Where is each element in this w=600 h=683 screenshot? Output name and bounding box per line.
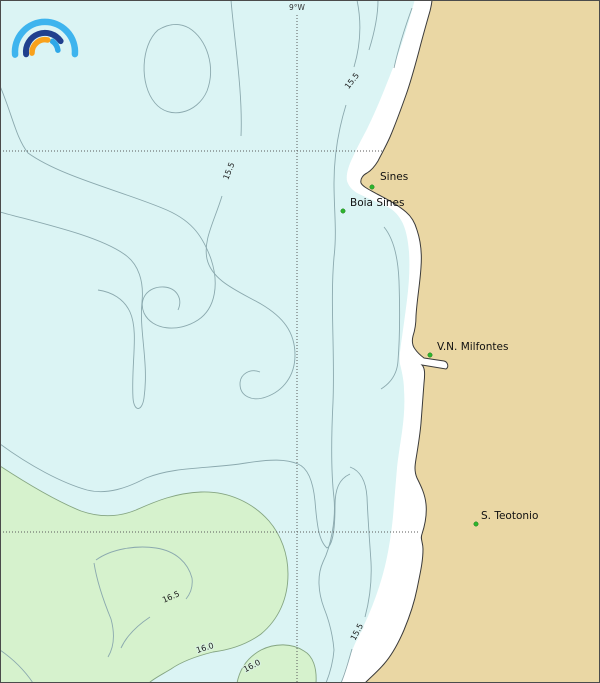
sst-map-page: 15.5 15.5 15.5 16.5 16.0 16.0 9°W Sines …: [0, 0, 600, 683]
place-label-sines: Sines: [380, 171, 408, 183]
place-label-s-teotonio: S. Teotonio: [481, 510, 538, 522]
meridian-9w-label: 9°W: [289, 3, 306, 12]
place-marker-s-teotonio[interactable]: [474, 522, 478, 526]
place-marker-boia-sines[interactable]: [341, 209, 345, 213]
place-label-boia-sines: Boia Sines: [350, 197, 404, 209]
place-label-vn-milfontes: V.N. Milfontes: [437, 341, 508, 353]
place-marker-sines[interactable]: [370, 185, 374, 189]
sea-temperature-map[interactable]: 15.5 15.5 15.5 16.5 16.0 16.0 9°W Sines …: [0, 0, 600, 683]
place-marker-vn-milfontes[interactable]: [428, 353, 432, 357]
